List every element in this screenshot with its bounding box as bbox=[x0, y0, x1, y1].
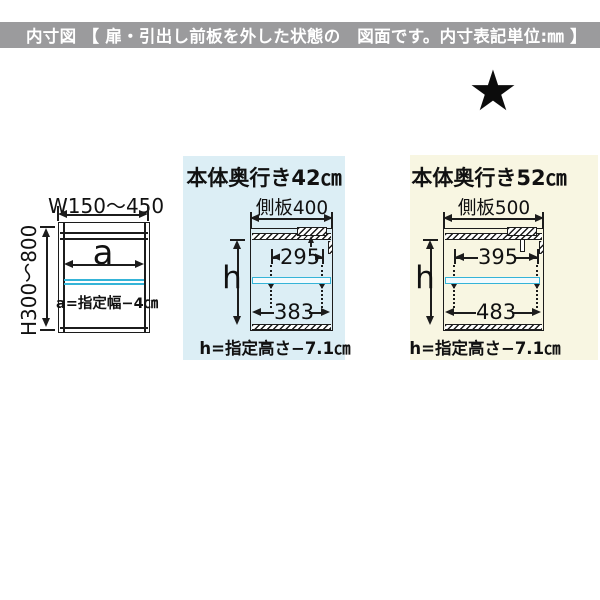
depth52-shelf-pitch-value: 395 bbox=[478, 247, 516, 268]
dim-line-a bbox=[70, 264, 138, 266]
depth52-shelf-board bbox=[445, 277, 540, 284]
arrowhead-down bbox=[426, 316, 434, 325]
shelf-pin-mark bbox=[451, 284, 457, 289]
arrowhead-right bbox=[135, 260, 144, 268]
depth52-height-formula: h=指定高さ−7.1㎝ bbox=[400, 335, 570, 359]
front-shelf-line bbox=[64, 283, 144, 285]
dim-line-width bbox=[64, 214, 143, 216]
dim-line-sideplate bbox=[449, 218, 538, 220]
depth52-side-panel-label: 側板500 bbox=[444, 194, 544, 220]
depth52-dowel-marker bbox=[520, 239, 525, 252]
front-bottom-panel-line bbox=[60, 327, 148, 329]
depth52-inner-height-letter: h bbox=[411, 260, 439, 296]
depth52-title: 本体奥行き52㎝ bbox=[409, 162, 569, 192]
depth42-side-hatch bbox=[328, 241, 332, 254]
depth52-bottom-hatch bbox=[445, 324, 542, 330]
arrowhead-right bbox=[535, 214, 544, 222]
shelf-pin-mark bbox=[534, 284, 540, 289]
header-bar: 内寸図 【 扉・引出し前板を外した状態の 図面です。内寸表記単位:㎜ 】 bbox=[0, 22, 600, 48]
arrowhead-right bbox=[529, 253, 538, 261]
arrowhead-left bbox=[443, 214, 452, 222]
arrowhead-right bbox=[139, 210, 148, 218]
depth52-back-rail-hatch bbox=[507, 227, 537, 236]
depth42-title: 本体奥行き42㎝ bbox=[184, 162, 344, 192]
depth42-shelf-board bbox=[252, 277, 331, 284]
depth52-inner-width-value: 483 bbox=[476, 302, 512, 323]
depth42-shelf-pitch-value: 295 bbox=[280, 247, 315, 268]
arrowhead-up bbox=[42, 228, 50, 237]
arrowhead-down bbox=[233, 316, 241, 325]
front-inner-width-letter: a bbox=[78, 233, 128, 273]
arrowhead-up bbox=[233, 240, 241, 249]
arrowhead-left bbox=[250, 214, 259, 222]
shelf-pin-mark bbox=[268, 284, 274, 289]
front-shelf-line bbox=[64, 279, 144, 281]
depth42-back-rail-hatch bbox=[297, 227, 327, 236]
depth52-side-hatch bbox=[539, 241, 543, 254]
arrowhead-left bbox=[455, 253, 464, 261]
depth42-inner-width-value: 383 bbox=[274, 302, 309, 323]
arrowhead-left bbox=[445, 308, 454, 316]
depth42-height-formula: h=指定高さ−7.1㎝ bbox=[190, 335, 360, 359]
arrowhead-down bbox=[42, 318, 50, 327]
arrowhead-right bbox=[324, 214, 333, 222]
arrowhead-left bbox=[64, 260, 73, 268]
header-title: 内寸図 【 扉・引出し前板を外した状態の 図面です。内寸表記単位:㎜ 】 bbox=[26, 23, 587, 47]
arrowhead-up bbox=[426, 240, 434, 249]
shelf-pin-mark bbox=[319, 284, 325, 289]
arrowhead-left bbox=[58, 210, 67, 218]
arrowhead-up bbox=[308, 236, 314, 243]
dim-tick bbox=[40, 329, 55, 331]
depth42-inner-height-letter: h bbox=[218, 260, 246, 296]
arrowhead-right bbox=[321, 308, 330, 316]
diagram-page: 内寸図 【 扉・引出し前板を外した状態の 図面です。内寸表記単位:㎜ 】 ★ W… bbox=[0, 0, 600, 600]
arrowhead-right bbox=[532, 308, 541, 316]
depth42-side-panel-label: 側板400 bbox=[250, 194, 334, 220]
dim-line-height bbox=[46, 235, 48, 321]
star-icon: ★ bbox=[462, 62, 524, 122]
front-width-formula: a=指定幅−4㎝ bbox=[56, 292, 152, 313]
dim-line-sideplate bbox=[256, 218, 327, 220]
arrowhead-left bbox=[252, 308, 261, 316]
front-height-range-label: H300～800 bbox=[14, 226, 43, 336]
depth42-bottom-hatch bbox=[252, 324, 331, 330]
